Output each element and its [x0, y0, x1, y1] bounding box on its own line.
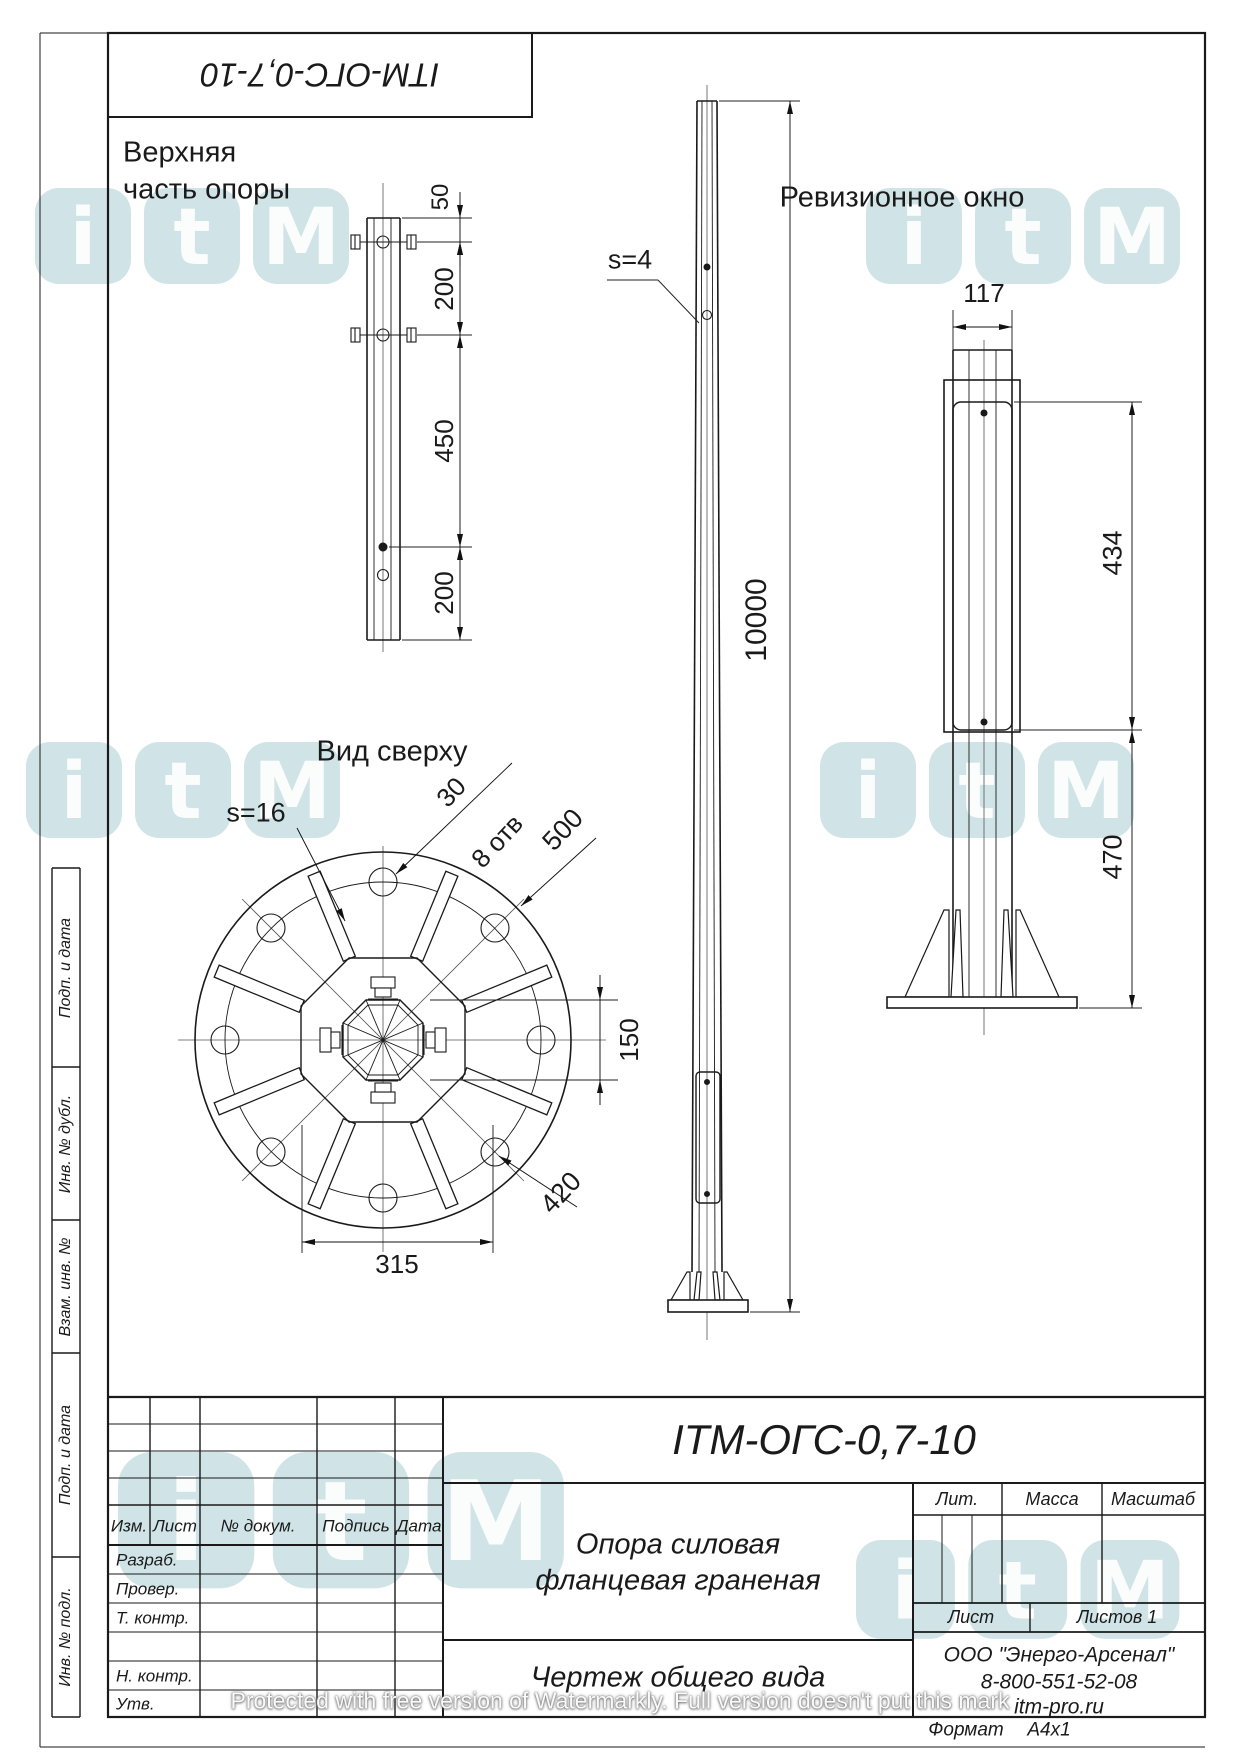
tb-company: ООО "Энерго-Арсенал"	[944, 1645, 1175, 1666]
tb-designation: ITM-ОГС-0,7-10	[672, 1419, 976, 1461]
tb-hdr-listov: Листов 1	[1077, 1608, 1158, 1626]
bolt-row-1	[351, 235, 416, 249]
upper-detail-title-1: Верхняя	[123, 139, 236, 168]
pole-outline	[953, 350, 1012, 997]
ground-hole-dot	[379, 543, 387, 551]
strip-inv-podl: Инв. № подл.	[58, 1587, 74, 1686]
dim-150: 150	[616, 1018, 642, 1061]
tb-name-2: фланцевая граненая	[535, 1567, 820, 1596]
facet-lines	[969, 350, 996, 997]
wall-thickness-leader	[607, 280, 699, 323]
dim-117: 117	[963, 280, 1004, 306]
inner-frame	[108, 33, 1205, 1717]
format-label: Формат	[928, 1721, 1003, 1740]
tb-hdr-massa: Масса	[1025, 1490, 1078, 1508]
dim-450: 450	[431, 419, 457, 462]
base-plate	[887, 997, 1077, 1008]
revision-view-title: Ревизионное окно	[780, 184, 1025, 213]
dim-10000: 10000	[742, 578, 772, 661]
revision-window-view	[887, 310, 1142, 1035]
dim-200a: 200	[431, 267, 457, 310]
tb-row-razrab: Разраб.	[116, 1552, 178, 1569]
tb-hdr-podp: Подпись	[322, 1518, 389, 1535]
dim-434: 434	[1100, 530, 1127, 575]
strip-podp-data-2: Подп. и дата	[58, 1405, 74, 1505]
wall-thickness-label: s=4	[608, 247, 652, 274]
tb-hdr-izm: Изм.	[111, 1518, 147, 1535]
top-view-title: Вид сверху	[316, 738, 467, 767]
window-cover	[944, 380, 1020, 732]
format-value: A4x1	[1027, 1721, 1070, 1740]
tb-row-tkontr: Т. контр.	[116, 1610, 189, 1627]
tb-row-nkontr: Н. контр.	[116, 1668, 193, 1685]
tb-row-utv: Утв.	[116, 1696, 155, 1713]
window-opening	[953, 402, 1012, 730]
wall-dot	[704, 264, 710, 270]
base-plate	[668, 1300, 748, 1312]
dim-50: 50	[429, 184, 453, 211]
strip-inv-dubl: Инв. № дубл.	[58, 1095, 74, 1193]
tb-hdr-masshtab: Масштаб	[1111, 1490, 1195, 1508]
extension-lines	[719, 101, 800, 1312]
strip-podp-data-1: Подп. и дата	[58, 918, 74, 1018]
tb-name-1: Опора силовая	[576, 1531, 780, 1560]
drawing-sheet: itMitMitMitMitMitM	[0, 0, 1240, 1755]
dim-315: 315	[375, 1251, 418, 1277]
bolt-row-2	[351, 328, 416, 342]
tb-row-prover: Провер.	[116, 1581, 179, 1598]
tb-hdr-lit: Лит.	[936, 1490, 978, 1508]
flange-thickness-label: s=16	[226, 800, 285, 827]
dim-200b: 200	[431, 571, 457, 614]
tb-hdr-doc: № докум.	[221, 1518, 296, 1535]
dim-470: 470	[1100, 834, 1127, 879]
strip-vzam-inv: Взам. инв. №	[58, 1238, 74, 1337]
tb-site: itm-pro.ru	[1014, 1697, 1104, 1718]
flipped-designation: ITM-ОГС-0,7-10	[201, 59, 440, 92]
tb-hdr-list2: Лист	[948, 1608, 994, 1626]
base-gussets	[905, 910, 1059, 997]
watermarkly-note: Protected with free version of Watermark…	[230, 1688, 1009, 1715]
dimension-lines	[953, 327, 1132, 1008]
tb-hdr-list: Лист	[153, 1518, 197, 1535]
pole-outline	[367, 218, 400, 640]
upper-detail-title-2: часть опоры	[123, 176, 290, 205]
tb-hdr-data: Дата	[397, 1518, 442, 1535]
